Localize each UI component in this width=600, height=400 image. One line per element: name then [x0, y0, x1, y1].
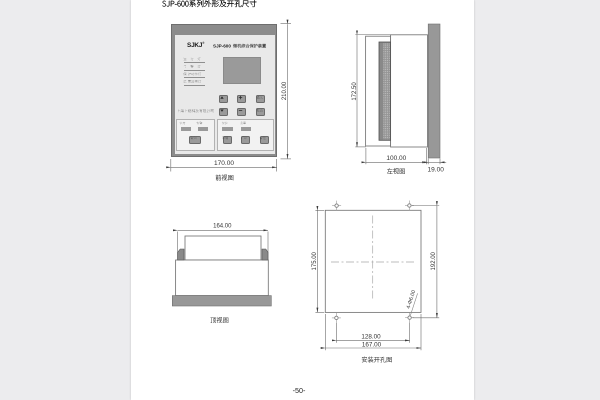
svg-text:172.50: 172.50 [352, 82, 358, 101]
svg-text:175.00: 175.00 [312, 251, 318, 270]
svg-text:100.00: 100.00 [386, 155, 406, 162]
svg-text:210.00: 210.00 [282, 81, 288, 100]
svg-text:170.00: 170.00 [214, 160, 234, 167]
svg-text:167.00: 167.00 [362, 341, 382, 348]
svg-text:-50-: -50- [293, 386, 306, 395]
svg-text:SJP-600: SJP-600 [213, 43, 231, 48]
svg-text:19.00: 19.00 [428, 166, 445, 173]
svg-text:128.00: 128.00 [361, 333, 381, 340]
svg-text:192.00: 192.00 [431, 251, 437, 270]
svg-text:164.00: 164.00 [213, 223, 232, 229]
